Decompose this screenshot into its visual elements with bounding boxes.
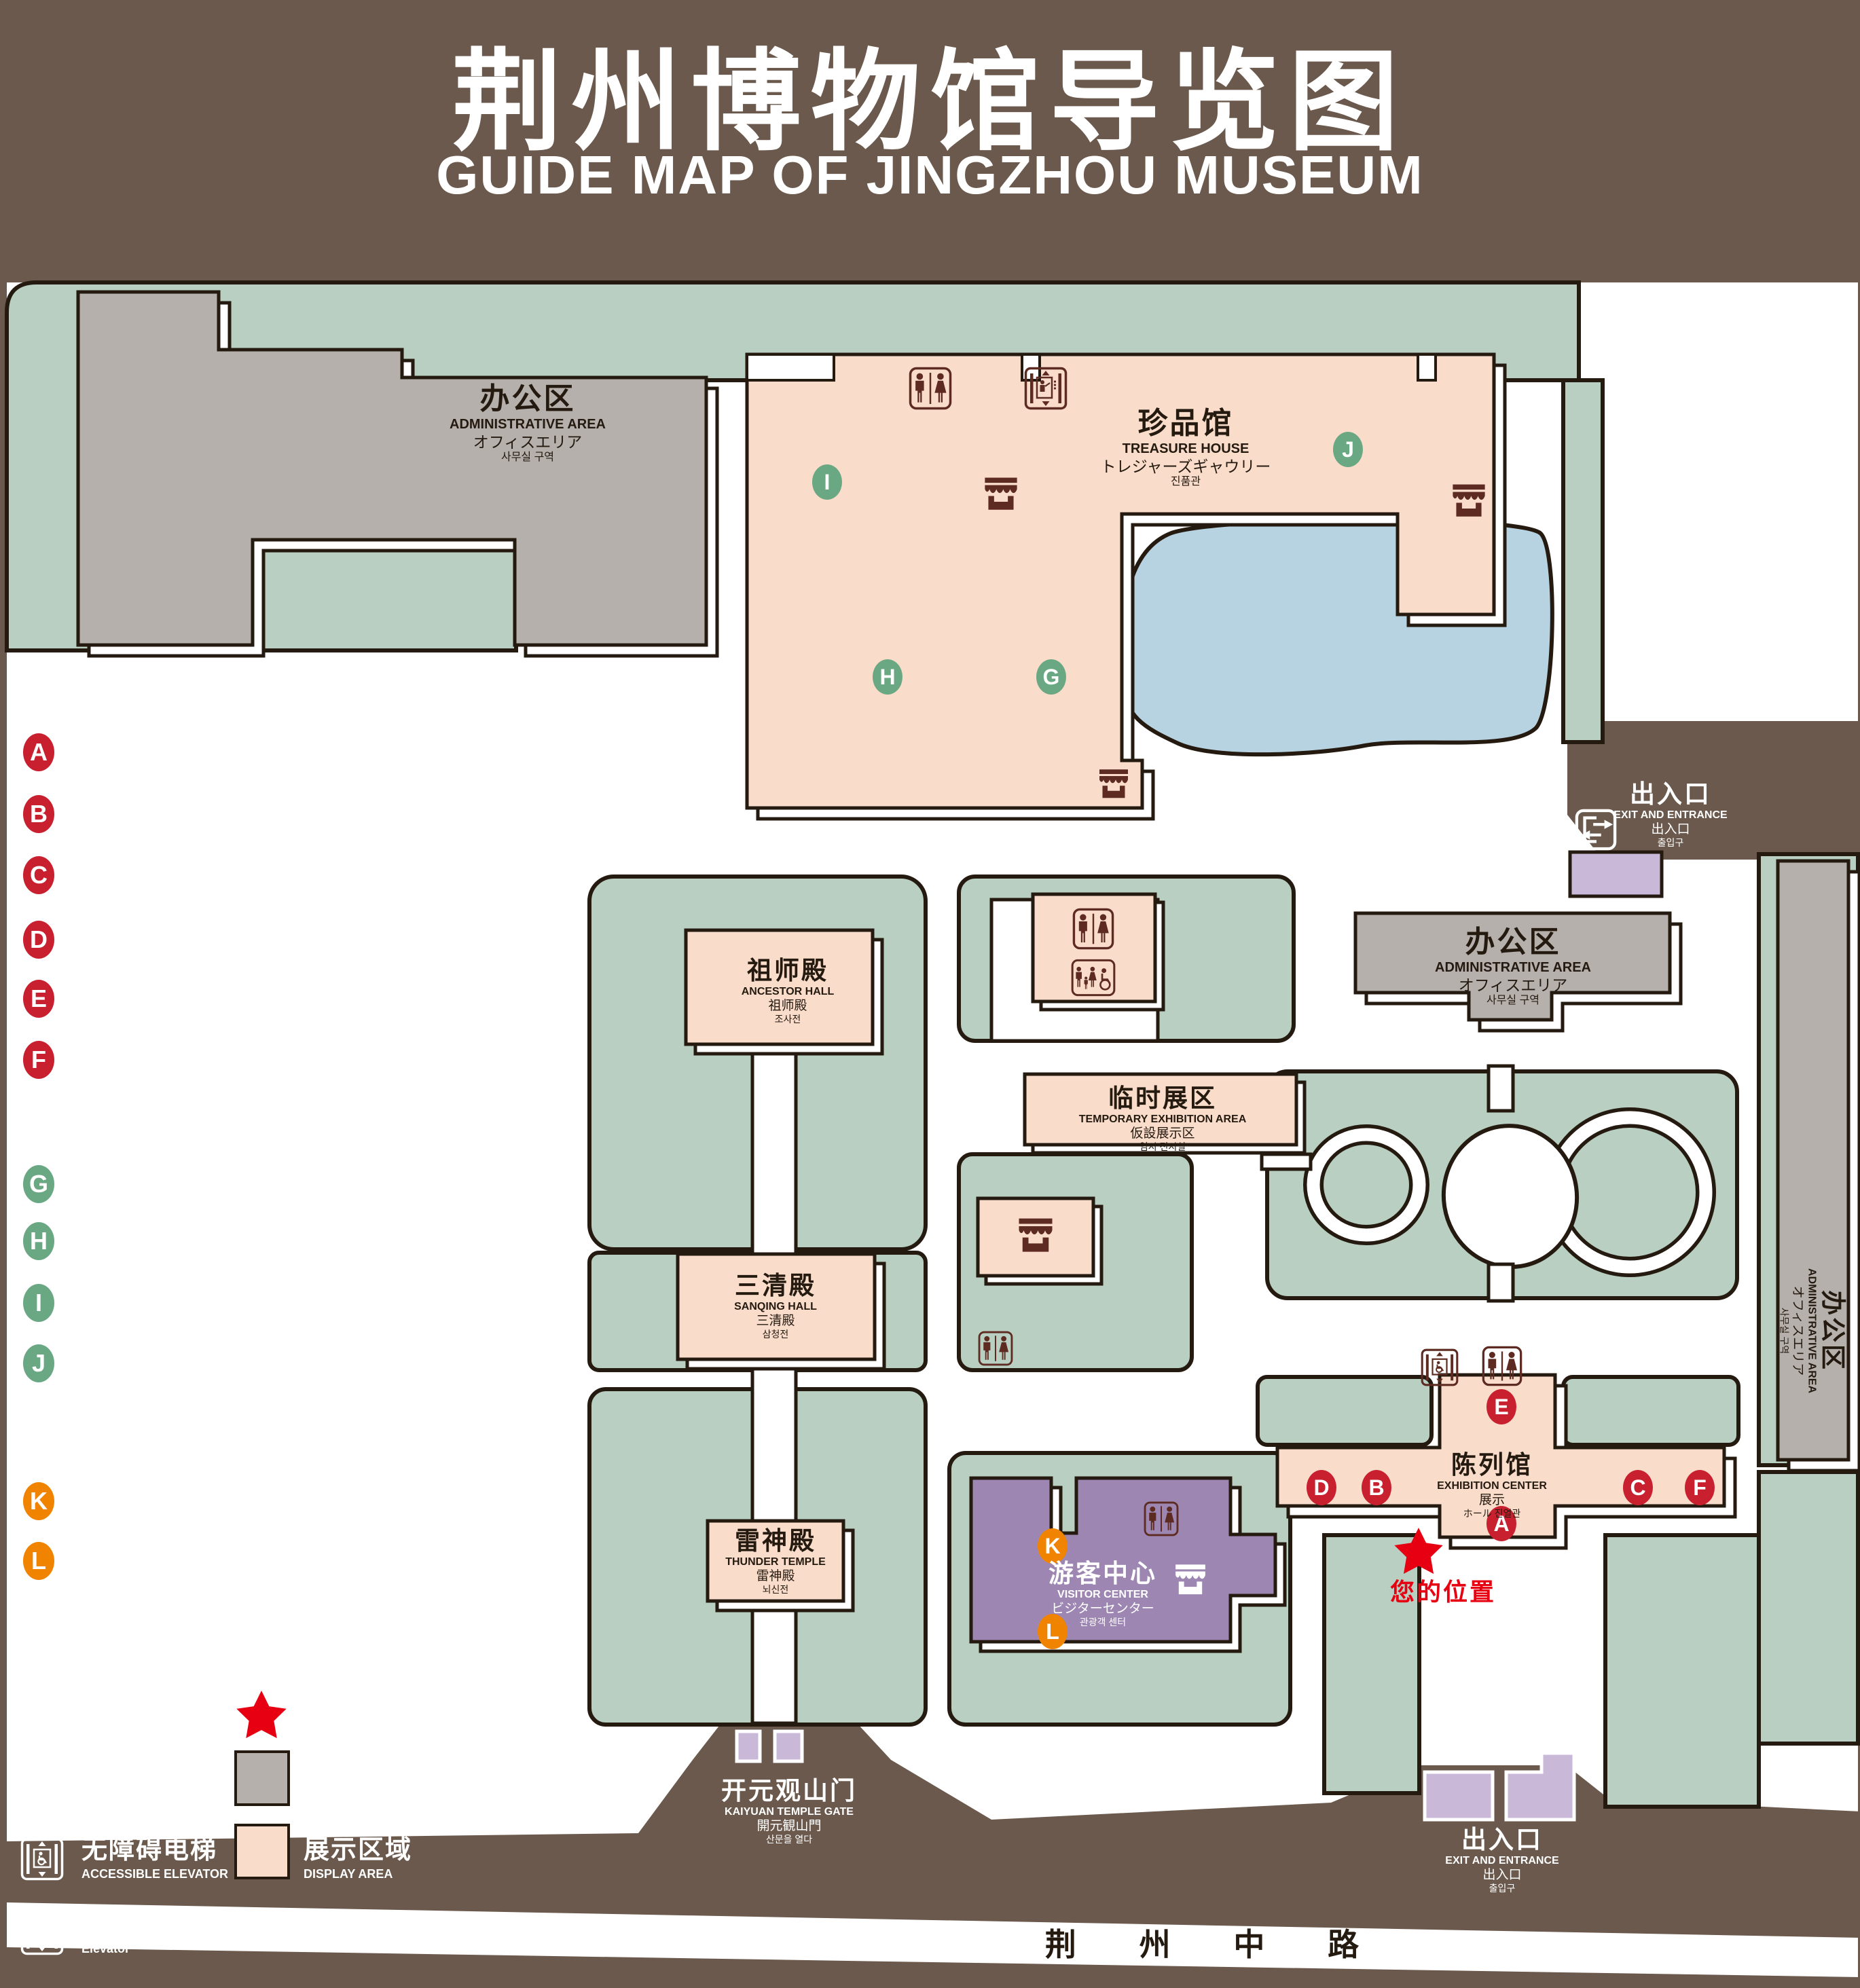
store-icon [1017,1218,1055,1253]
legend-section-exhibition-center: 陈列馆EXHIBITION CENTER [23,669,428,722]
restrooms-legend-label: 卫生间 RESTROOMS [81,1689,163,1733]
legend-item-L: L 医疗点CLINIC 1F [23,1542,503,1602]
item-zh: 安全保卫 [23,1494,503,1524]
ancestor-hall-label: 祖师殿ANCESTOR HALL 祖师殿조사전 [742,956,835,1025]
badge-B: B [23,795,54,833]
legend-item-B: B 荆州出土铜器展JINGZHOU UNEARTHED BRONZE WARE … [23,795,503,855]
your-location-text: 您的位置 [1390,1572,1496,1608]
office-area-swatch [234,1750,290,1806]
badge-I: I [23,1284,54,1322]
item-en: SECURITY [23,1528,403,1543]
map-badge-B: B [1362,1470,1391,1505]
kaiyuan-gate-label: 开元观山门KAIYUAN TEMPLE GATE 開元観山門산문을 열다 [721,1776,857,1845]
item-floor: 1-2F [444,1346,503,1378]
store-icon [983,477,1019,511]
legend-item-A: A 《火中的凤凰》壁画THE PHOENIX IN FIRE "MURAL PA… [23,733,503,794]
elevator-icon [1024,367,1068,410]
map-badge-C: C [1623,1470,1653,1505]
label-en: OFFICE AREA [304,1794,412,1808]
item-floor: 1F [469,1223,503,1256]
store-icon [20,1617,65,1658]
legend-item-D: D 荆州出土瓷器展JINGZHOU UNEARTHED PORCELAIN EX… [23,921,503,981]
label-zh: 您的位置 [304,1693,412,1720]
lawn-strip-east [1563,380,1603,742]
gate-block-top-right [1570,852,1662,896]
badge-F: F [23,1041,54,1079]
label-zh: 文创商店 [81,1616,190,1643]
legend-item-H: H 互动体验厅INTERACTIVE EXPERIENCE HALL 1F [23,1222,503,1283]
map-badge-F: F [1685,1470,1715,1505]
map-badge-J: J [1333,432,1363,467]
legend-item-G: G 放映厅PROJECTION HALL 1F [23,1165,503,1226]
store-icon [1097,769,1130,799]
guide-map-poster: 荆州博物馆导览图 GUIDE MAP OF JINGZHOU MUSEUM 陈列… [0,0,1860,1988]
item-en: JINGZHOU UNEARTHED BRONZE WARE EXHIBITIO… [23,841,403,855]
map-badge-H: H [873,659,902,695]
sanqing-hall-label: 三清殿SANQING HALL 三清殿삼청전 [734,1271,817,1340]
legend-item-J: J 丹漆神韵——楚秦汉漆器精品展ROMANTIC CHARM OF THE CR… [23,1344,503,1420]
item-en: JIANGHAN PLAIN PRIMITIVE CULTURE EXHIBIT… [23,902,403,917]
label-zh: 办公区域 [304,1764,412,1791]
label-en: RESTROOMS [81,1719,163,1733]
admin-east-label: 办公区ADMINISTRATIVE AREA オフィスエリア사무실 구역 [1435,925,1591,1008]
legend-item-F: F 荆州出土玉器展JINGZHOU UNEARTHED JADE EXHIBIT… [23,1041,503,1101]
treasure-house-label: 珍品馆TREASURE HOUSE トレジャーズギャウリー진품관 [1101,406,1271,489]
display-area-legend-label: 展示区域 DISPLAY AREA [304,1837,412,1881]
label-en: STORE [81,1646,190,1660]
item-zh: 五大夫遂——凤凰山168号汉墓展 [23,1296,503,1326]
garden-gap-north [1489,1066,1513,1111]
section-title-en: TREASURE HOUSE [167,1122,408,1150]
map-badge-I: I [812,464,842,500]
page-subtitle: GUIDE MAP OF JINGZHOU MUSEUM [0,144,1860,206]
item-floor: 1F [469,796,503,829]
legend-section-treasure-house: 珍品馆TREASURE HOUSE [23,1101,408,1155]
section-title-zh: 游客中心 [23,1432,181,1473]
admin-strip-label: 办公区ADMINISTRATIVE AREA オフィスエリア사무실 구역 [1779,1268,1847,1393]
label-zh: 无障碍电梯 [81,1837,228,1864]
store-icon [1173,1564,1207,1596]
item-zh: 医疗点 [23,1554,503,1584]
item-floor: 1F [469,735,503,767]
kaiyuan-gate-block-east [775,1731,802,1761]
item-zh: 放映厅 [23,1177,503,1207]
label-zh: 卫生间 [81,1689,163,1716]
item-floor: 2F [469,922,503,955]
kaiyuan-gate-block-west [737,1731,760,1761]
item-floor: 1F [469,1484,503,1516]
item-floor: 1F [469,858,503,890]
label-zh: 家庭卫生间 [81,1763,217,1790]
thunder-temple-label: 雷神殿THUNDER TEMPLE 雷神殿뇌신전 [725,1526,826,1595]
item-zh: 荆州出土玉器展 [23,1053,503,1083]
map-badge-E: E [1487,1389,1516,1424]
section-title-en: VISITOR CENTER [206,1442,422,1471]
item-en: INTERACTIVE EXPERIENCE HALL [23,1268,403,1283]
label-zh: 出入口 [304,1621,431,1649]
badge-K: K [23,1482,54,1520]
your-location-legend-label: 您的位置 YOUR LOCATION [304,1693,412,1737]
garden-gap-south [1489,1264,1513,1301]
item-en: CLINIC [23,1588,403,1602]
temporary-exhibition-label: 临时展区TEMPORARY EXHIBITION AREA 仮設展示区임시 전시… [1079,1084,1247,1152]
lawn-exhibition-ne [1563,1377,1738,1445]
display-area-swatch [234,1824,290,1879]
exit-entrance-south-label: 出入口EXIT AND ENTRANCE 出入口출입구 [1445,1825,1558,1894]
exhibition-center-label: 陈列馆EXHIBITION CENTER 展示ホール 진열관 [1437,1450,1547,1519]
accessible-elevator-icon [1421,1348,1459,1386]
label-en: EXIT AND ENTRANCE [304,1651,431,1665]
item-en: JINGZHOU EXCAVATED BAMBOO SLIPS EXHIBITI… [23,1026,403,1040]
badge-D: D [23,921,54,959]
family-restrooms-legend-label: 家庭卫生间 FAMILY RESTROOMS [81,1763,217,1807]
badge-C: C [23,856,54,894]
item-floor: 2F [469,1285,503,1318]
restrooms-icon [909,367,952,410]
treasure-house-notch-1 [747,354,834,380]
exit-entrance-northeast-label: 出入口EXIT AND ENTRANCE 出入口출입구 [1613,779,1727,848]
item-zh: 荆州出土简牍展 [23,992,503,1022]
family-restrooms-icon [18,1762,71,1807]
treasure-house-notch-3 [1418,354,1436,380]
label-en: Elevator [81,1942,136,1956]
item-en: THE PHOENIX IN FIRE "MURAL PAINTING [23,779,403,794]
restrooms-icon [1144,1501,1179,1536]
legend-section-visitor-center: 游客中心VISITOR CENTER [23,1422,422,1475]
accessible-elevator-icon [20,1837,64,1881]
restrooms-icon [978,1331,1013,1366]
south-gate-block-west [1425,1772,1493,1820]
label-en: FAMILY RESTROOMS [81,1792,217,1807]
item-floor: 2F [469,981,503,1014]
label-en: YOUR LOCATION [304,1723,412,1737]
badge-A: A [23,733,54,771]
map-badge-D: D [1307,1470,1336,1505]
exit-entrance-legend-label: 出入口 EXIT AND ENTRANCE [304,1621,431,1665]
item-zh: 荆州出土铜器展 [23,807,503,837]
admin-northwest-label: 办公区ADMINISTRATIVE AREA オフィスエリア사무실 구역 [450,382,606,464]
your-location-star [1394,1528,1443,1574]
legend-item-C: C 江汉平原原始文化展JIANGHAN PLAIN PRIMITIVE CULT… [23,856,503,917]
lawn-east-strip-south [1759,1472,1858,1744]
badge-E: E [23,980,54,1018]
section-title-zh: 珍品馆 [23,1111,141,1152]
office-area-legend-label: 办公区域 OFFICE AREA [304,1764,412,1808]
badge-L: L [23,1542,54,1580]
visitor-center-label: 游客中心VISITOR CENTER ビジターセンター관광객 센터 [1048,1559,1157,1627]
item-en: JINGZHOU UNEARTHED JADE EXHIBITION [23,1087,403,1101]
badge-G: G [23,1165,54,1203]
store-icon [1451,484,1487,518]
lawn-exhibition-nw [1258,1377,1432,1445]
item-zh: 《火中的凤凰》壁画 [23,745,503,775]
label-en: DISPLAY AREA [304,1867,412,1881]
exit-entrance-icon [239,1621,284,1665]
item-zh: 互动体验厅 [23,1234,503,1264]
legend-item-E: E 荆州出土简牍展JINGZHOU EXCAVATED BAMBOO SLIPS… [23,980,503,1040]
item-floor: 2F [469,1042,503,1075]
badge-J: J [23,1344,54,1382]
central-walkway [752,1044,796,1723]
exit-entrance-icon [1575,809,1617,851]
lawn-exhibition-se [1605,1535,1759,1807]
elevator-legend-label: 电梯 Elevator [81,1912,136,1956]
item-zh: 荆州出土瓷器展 [23,933,503,963]
item-floor: 1F [469,1166,503,1199]
road-label: 荆 州 中 路 [1045,1920,1386,1965]
family-restrooms-icon [1071,959,1116,997]
legend-item-K: K 安全保卫SECURITY 1F [23,1482,503,1543]
item-en: ROMANTIC CHARM OF THE CRIMSON LACQUERS—E… [23,1391,403,1420]
restrooms-icon [1482,1346,1522,1386]
elevator-icon [20,1912,64,1955]
restrooms-icon [1072,908,1114,950]
garden-gap-west [1262,1154,1311,1169]
item-zh: 江汉平原原始文化展 [23,868,503,898]
badge-H: H [23,1222,54,1260]
item-zh: 丹漆神韵——楚秦汉漆器精品展 [23,1357,503,1386]
map-badge-G: G [1036,659,1066,695]
item-floor: 1F [469,1543,503,1576]
store-legend-label: 文创商店 STORE [81,1616,190,1660]
label-zh: 展示区域 [304,1837,412,1864]
your-location-icon [236,1691,287,1738]
label-en: ACCESSIBLE ELEVATOR [81,1867,228,1881]
restrooms-icon [20,1689,65,1733]
label-zh: 电梯 [81,1912,136,1939]
accessible-elevator-legend-label: 无障碍电梯 ACCESSIBLE ELEVATOR [81,1837,228,1881]
section-title-zh: 陈列馆 [23,679,141,720]
section-title-en: EXHIBITION CENTER [167,689,428,718]
